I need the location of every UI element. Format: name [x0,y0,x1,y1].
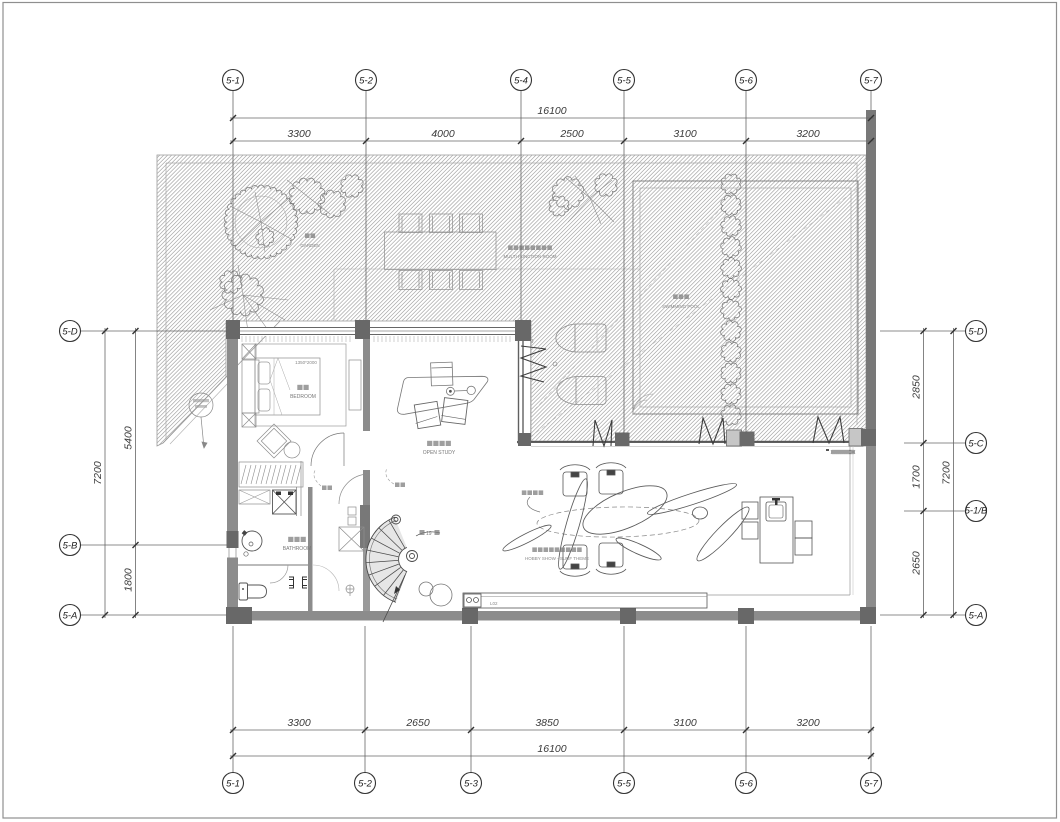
svg-text:MULTI FUNCTION ROOM: MULTI FUNCTION ROOM [504,254,557,259]
svg-text:5-1/B: 5-1/B [965,506,988,517]
svg-text:5-5: 5-5 [617,779,631,790]
svg-text:2650: 2650 [911,551,923,576]
svg-text:5-6: 5-6 [739,779,753,790]
svg-text:5-D: 5-D [968,327,983,338]
svg-text:3200: 3200 [796,128,820,140]
svg-text:BEDROOM: BEDROOM [290,394,316,400]
svg-text:19: 19 [426,531,432,537]
svg-text:5-1: 5-1 [226,76,240,87]
svg-text:2500: 2500 [559,128,584,140]
svg-text:3300: 3300 [287,717,311,729]
svg-text:4000: 4000 [431,128,455,140]
svg-text:5-A: 5-A [63,611,78,622]
svg-text:OPEN STUDY: OPEN STUDY [423,450,456,456]
svg-text:7200: 7200 [941,461,953,485]
svg-text:BATHROOM: BATHROOM [283,546,312,552]
svg-text:5-7: 5-7 [864,779,878,790]
svg-text:L02: L02 [490,601,498,606]
svg-text:3850: 3850 [535,717,559,729]
svg-text:5-C: 5-C [968,439,983,450]
svg-text:1700: 1700 [911,465,923,489]
svg-text:5-3: 5-3 [464,779,478,790]
svg-text:5-2: 5-2 [359,76,373,87]
svg-text:GARDEN: GARDEN [300,243,319,248]
svg-text:5-D: 5-D [62,327,77,338]
svg-text:3100: 3100 [673,128,697,140]
svg-text:5-A: 5-A [969,611,984,622]
svg-text:1800: 1800 [123,568,135,592]
svg-text:2650: 2650 [405,717,430,729]
svg-text:16100: 16100 [537,743,566,755]
svg-text:5-B: 5-B [63,541,78,552]
svg-text:HOBBY SHOW - SURF THEME: HOBBY SHOW - SURF THEME [525,556,589,561]
svg-text:5-2: 5-2 [358,779,372,790]
svg-text:3200: 3200 [796,717,820,729]
svg-text:SWIMMING POOL: SWIMMING POOL [662,304,700,309]
svg-text:16100: 16100 [537,105,566,117]
svg-text:5-1: 5-1 [226,779,240,790]
svg-text:5-5: 5-5 [617,76,631,87]
svg-text:5-7: 5-7 [864,76,878,87]
svg-text:1350*2000: 1350*2000 [295,360,317,365]
svg-text:5-4: 5-4 [514,76,528,87]
svg-text:5400: 5400 [123,426,135,450]
svg-text:3300: 3300 [287,128,311,140]
svg-text:5-6: 5-6 [739,76,753,87]
svg-text:7200: 7200 [92,461,104,485]
svg-text:3100: 3100 [673,717,697,729]
svg-text:2850: 2850 [911,375,923,400]
